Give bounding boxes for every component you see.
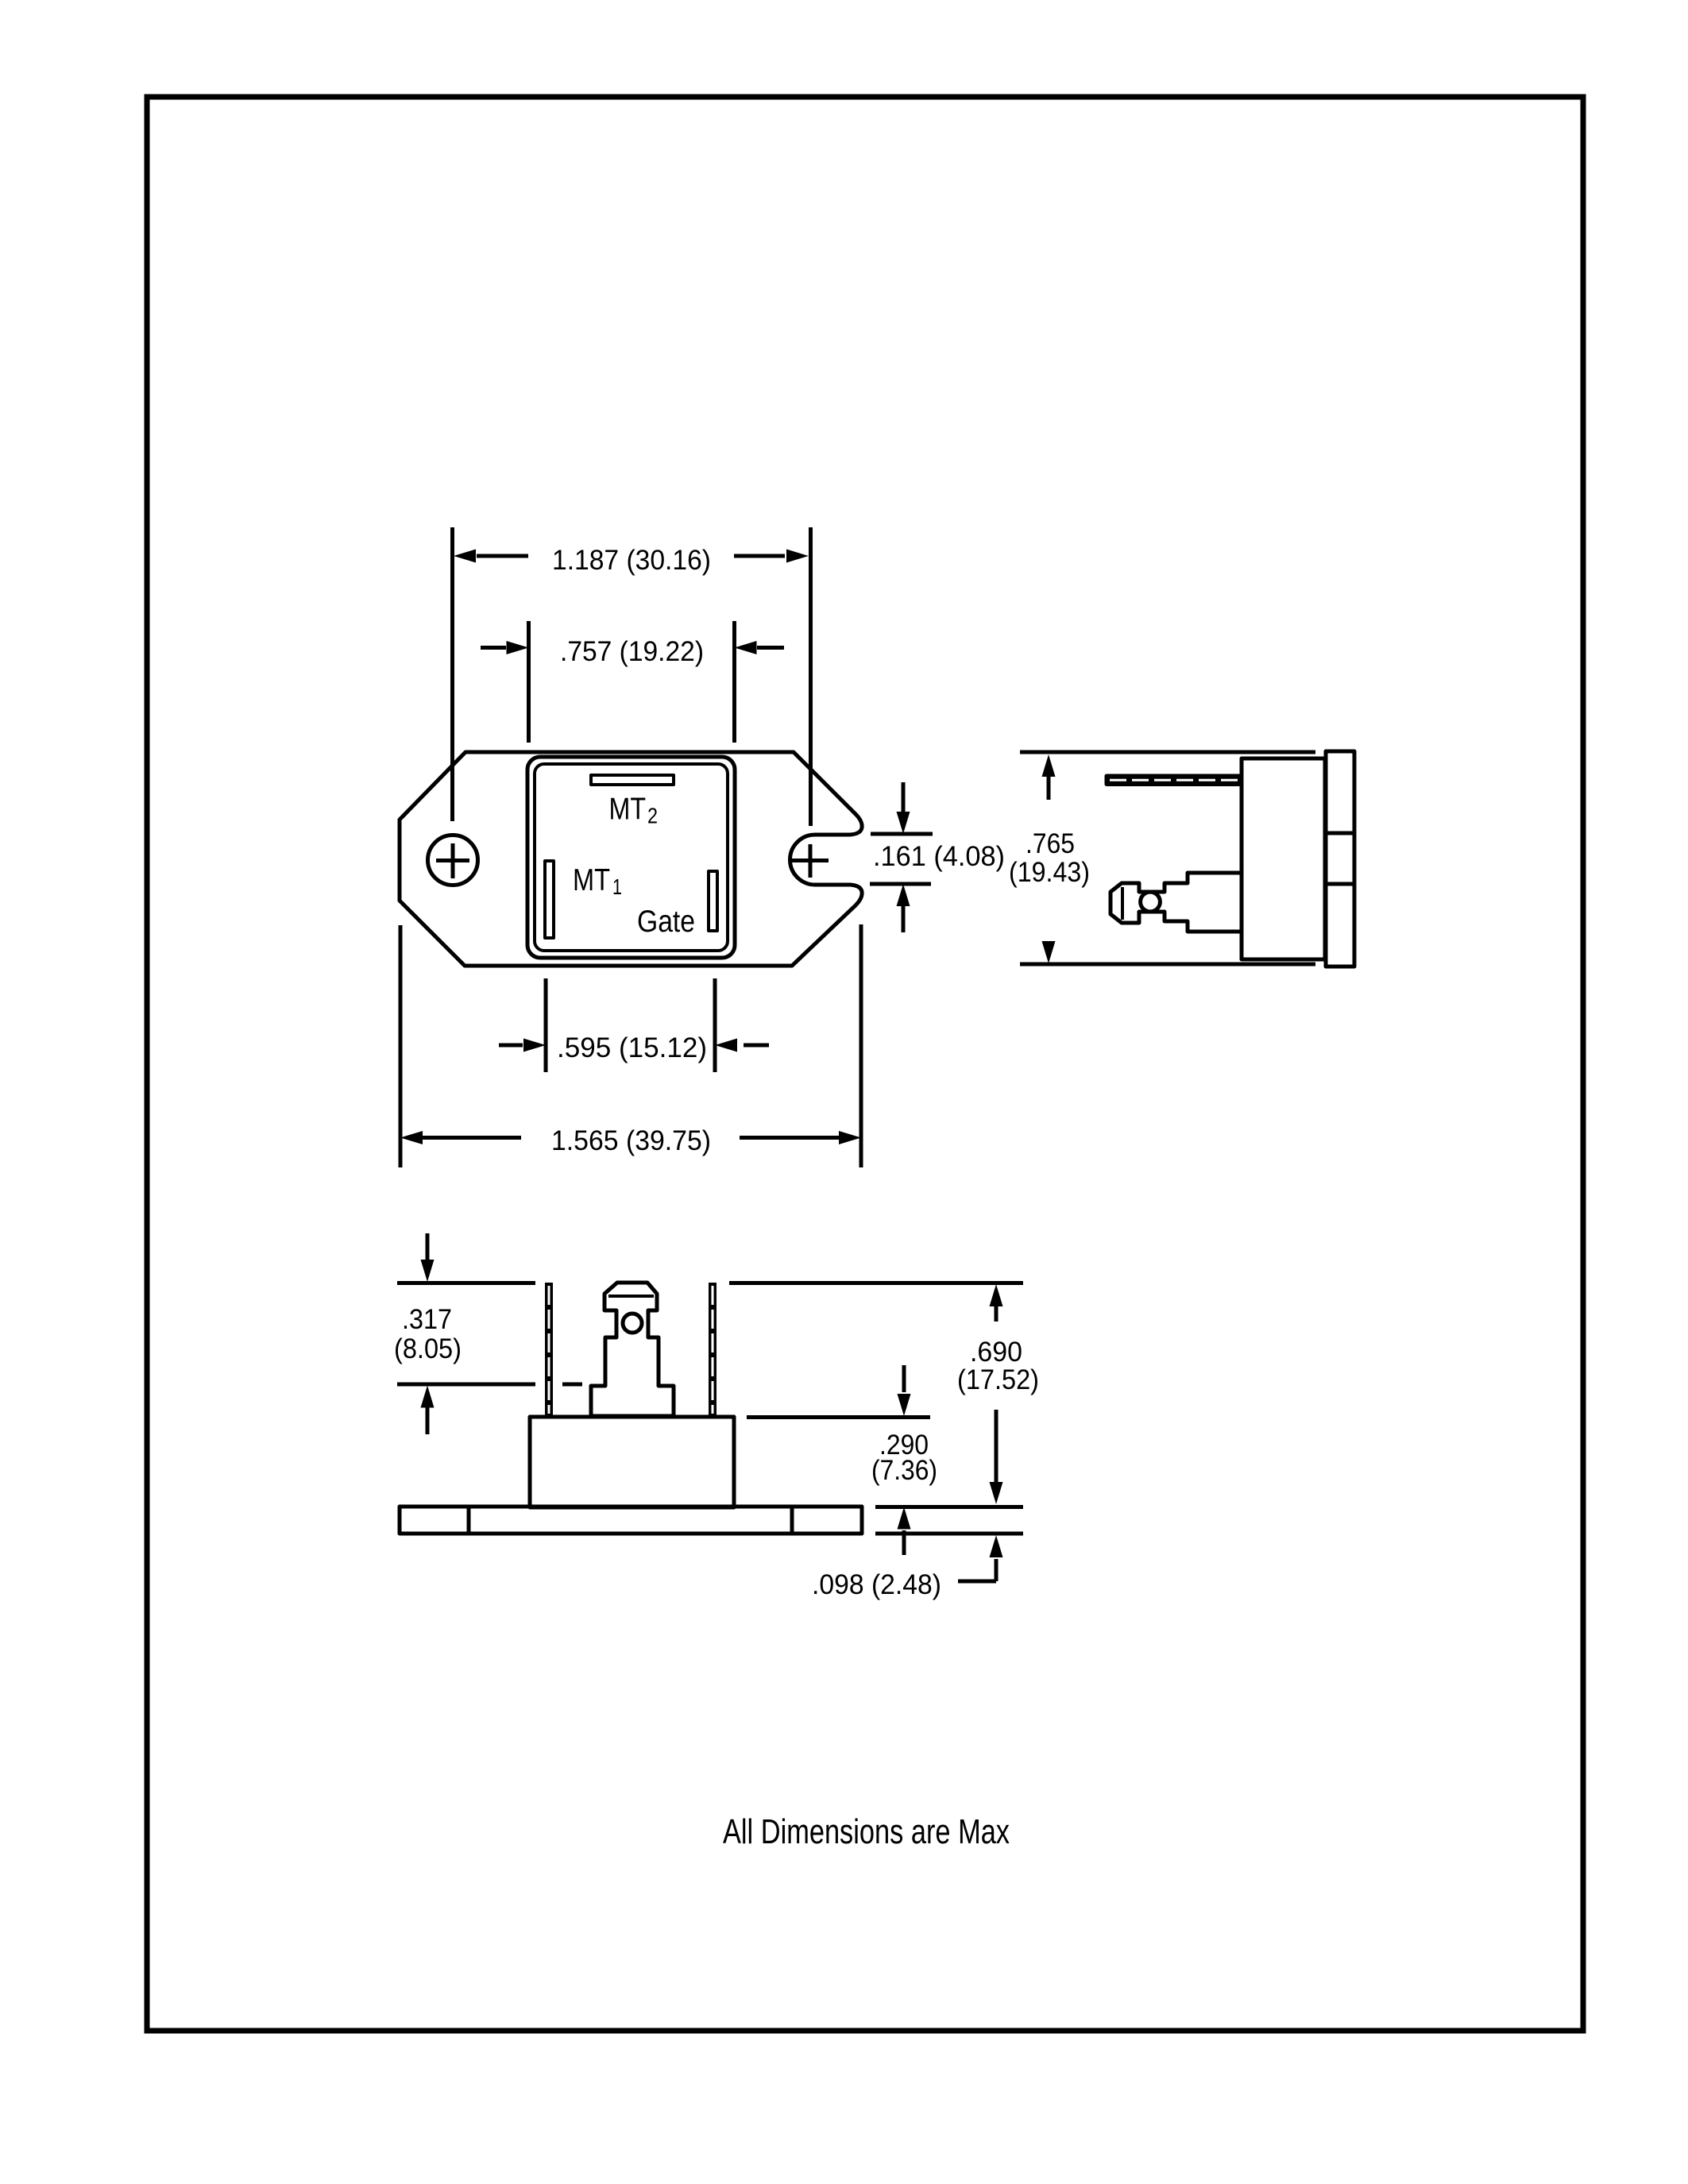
svg-text:MT: MT xyxy=(609,793,647,827)
svg-text:.161 (4.08): .161 (4.08) xyxy=(873,840,1005,872)
svg-text:MT: MT xyxy=(573,863,610,897)
svg-text:(7.36): (7.36) xyxy=(871,1454,937,1486)
svg-text:2: 2 xyxy=(647,804,658,828)
svg-text:(19.43): (19.43) xyxy=(1009,856,1090,888)
svg-text:.757 (19.22): .757 (19.22) xyxy=(560,635,704,667)
svg-text:Gate: Gate xyxy=(637,905,695,939)
svg-text:.098 (2.48): .098 (2.48) xyxy=(812,1569,941,1600)
svg-text:1.187 (30.16): 1.187 (30.16) xyxy=(552,544,711,576)
svg-text:.317: .317 xyxy=(402,1303,452,1335)
svg-text:(8.05): (8.05) xyxy=(394,1333,462,1364)
svg-text:.765: .765 xyxy=(1026,828,1075,859)
svg-text:.690: .690 xyxy=(970,1336,1022,1368)
svg-text:All Dimensions are Max: All Dimensions are Max xyxy=(723,1812,1010,1851)
svg-text:(17.52): (17.52) xyxy=(957,1364,1039,1395)
svg-text:1.565 (39.75): 1.565 (39.75) xyxy=(551,1125,711,1156)
svg-text:.595 (15.12): .595 (15.12) xyxy=(557,1032,707,1063)
svg-text:1: 1 xyxy=(612,874,622,899)
